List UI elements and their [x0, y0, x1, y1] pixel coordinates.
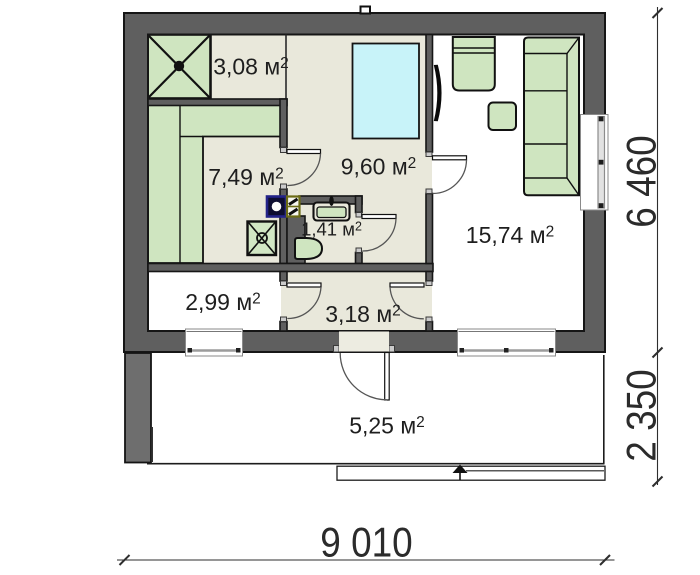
svg-text:15,74 м2: 15,74 м2 [466, 222, 554, 248]
svg-text:9 010: 9 010 [320, 519, 412, 566]
svg-text:9,60 м2: 9,60 м2 [341, 154, 417, 180]
svg-text:5,25 м2: 5,25 м2 [349, 413, 425, 439]
svg-text:2 350: 2 350 [618, 369, 665, 461]
svg-text:2,99 м2: 2,99 м2 [185, 289, 261, 315]
svg-text:6 460: 6 460 [618, 135, 665, 227]
svg-text:7,49 м2: 7,49 м2 [208, 164, 284, 190]
svg-text:3,08 м2: 3,08 м2 [213, 54, 289, 80]
svg-text:1,41 м2: 1,41 м2 [301, 219, 362, 240]
svg-text:3,18 м2: 3,18 м2 [325, 301, 401, 327]
